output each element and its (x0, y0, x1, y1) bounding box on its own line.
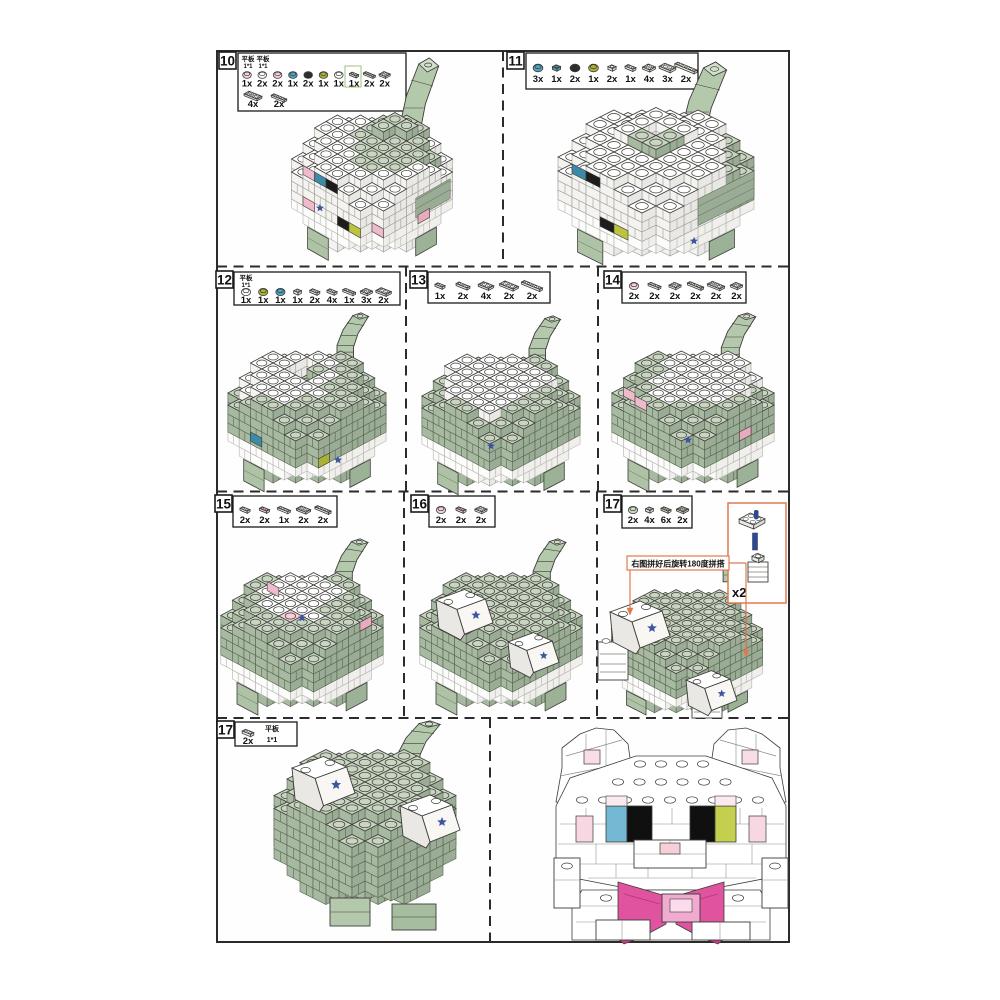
svg-text:2x: 2x (259, 515, 270, 526)
svg-text:2x: 2x (379, 79, 390, 90)
svg-text:1x: 1x (279, 515, 290, 526)
svg-text:2x: 2x (378, 295, 389, 306)
svg-text:4x: 4x (248, 99, 259, 110)
svg-text:1x: 1x (435, 291, 446, 302)
svg-text:x2: x2 (732, 585, 746, 600)
svg-text:2x: 2x (628, 515, 639, 526)
svg-text:1x: 1x (588, 74, 599, 85)
svg-text:1*1: 1*1 (267, 737, 278, 744)
svg-text:10: 10 (220, 54, 235, 69)
svg-text:2x: 2x (690, 291, 701, 302)
svg-text:1x: 1x (551, 74, 562, 85)
svg-text:2x: 2x (570, 74, 581, 85)
svg-text:1*1: 1*1 (258, 64, 268, 70)
svg-text:2x: 2x (310, 295, 321, 306)
svg-text:2x: 2x (649, 291, 660, 302)
svg-text:2x: 2x (240, 515, 251, 526)
svg-text:2x: 2x (456, 515, 467, 526)
svg-text:2x: 2x (298, 515, 309, 526)
svg-text:17: 17 (218, 723, 233, 738)
svg-text:6x: 6x (661, 515, 672, 526)
svg-text:2x: 2x (364, 79, 375, 90)
svg-text:1x: 1x (344, 295, 355, 306)
svg-text:1x: 1x (288, 79, 299, 90)
svg-text:2x: 2x (681, 74, 692, 85)
svg-text:3x: 3x (533, 74, 544, 85)
svg-text:2x: 2x (731, 291, 742, 302)
svg-text:3x: 3x (361, 295, 372, 306)
svg-text:2x: 2x (272, 79, 283, 90)
svg-text:4x: 4x (644, 515, 655, 526)
svg-text:2x: 2x (274, 99, 285, 110)
svg-text:2x: 2x (243, 736, 254, 747)
svg-text:2x: 2x (670, 291, 681, 302)
svg-text:右图拼好后旋转180度拼搭: 右图拼好后旋转180度拼搭 (630, 559, 725, 569)
svg-text:11: 11 (508, 54, 523, 69)
svg-text:2x: 2x (629, 291, 640, 302)
svg-text:2x: 2x (711, 291, 722, 302)
svg-text:2x: 2x (677, 515, 688, 526)
svg-text:17: 17 (605, 497, 620, 512)
svg-text:1x: 1x (349, 79, 360, 90)
svg-text:3x: 3x (662, 74, 673, 85)
svg-text:2x: 2x (527, 291, 538, 302)
svg-text:1x: 1x (318, 79, 329, 90)
svg-text:平板: 平板 (257, 54, 271, 63)
svg-text:1x: 1x (275, 295, 286, 306)
svg-text:平板: 平板 (265, 724, 280, 733)
svg-text:13: 13 (411, 273, 427, 288)
svg-text:1x: 1x (258, 295, 269, 306)
svg-text:4x: 4x (481, 291, 492, 302)
svg-text:1x: 1x (334, 79, 345, 90)
svg-text:1x: 1x (625, 74, 636, 85)
svg-text:2x: 2x (476, 515, 487, 526)
svg-text:2x: 2x (303, 79, 314, 90)
svg-text:平板: 平板 (240, 273, 254, 282)
svg-text:12: 12 (217, 273, 232, 288)
svg-text:平板: 平板 (242, 54, 256, 63)
svg-text:4x: 4x (644, 74, 655, 85)
svg-text:1x: 1x (292, 295, 303, 306)
svg-text:2x: 2x (436, 515, 447, 526)
svg-text:2x: 2x (607, 74, 618, 85)
svg-text:16: 16 (412, 497, 428, 512)
svg-text:1x: 1x (242, 79, 253, 90)
svg-text:1*1: 1*1 (243, 64, 253, 70)
svg-text:2x: 2x (257, 79, 268, 90)
svg-text:2x: 2x (318, 515, 329, 526)
svg-text:15: 15 (216, 497, 232, 512)
svg-text:4x: 4x (327, 295, 338, 306)
svg-text:2x: 2x (458, 291, 469, 302)
svg-text:14: 14 (605, 273, 621, 288)
svg-text:1x: 1x (241, 295, 252, 306)
svg-text:2x: 2x (504, 291, 515, 302)
